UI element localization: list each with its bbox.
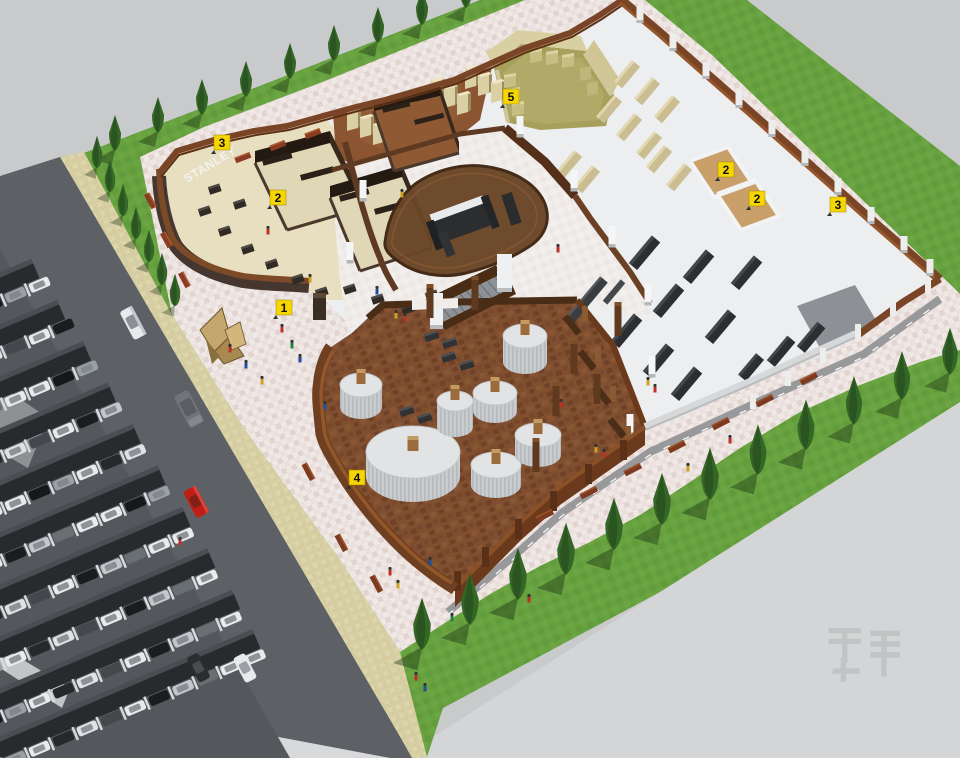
svg-text:3: 3: [219, 136, 226, 150]
svg-text:3: 3: [835, 198, 842, 212]
svg-text:1: 1: [281, 301, 288, 315]
svg-text:2: 2: [723, 163, 730, 177]
svg-text:5: 5: [508, 90, 515, 104]
svg-text:2: 2: [275, 191, 282, 205]
svg-text:2: 2: [754, 192, 761, 206]
svg-text:4: 4: [354, 471, 361, 485]
